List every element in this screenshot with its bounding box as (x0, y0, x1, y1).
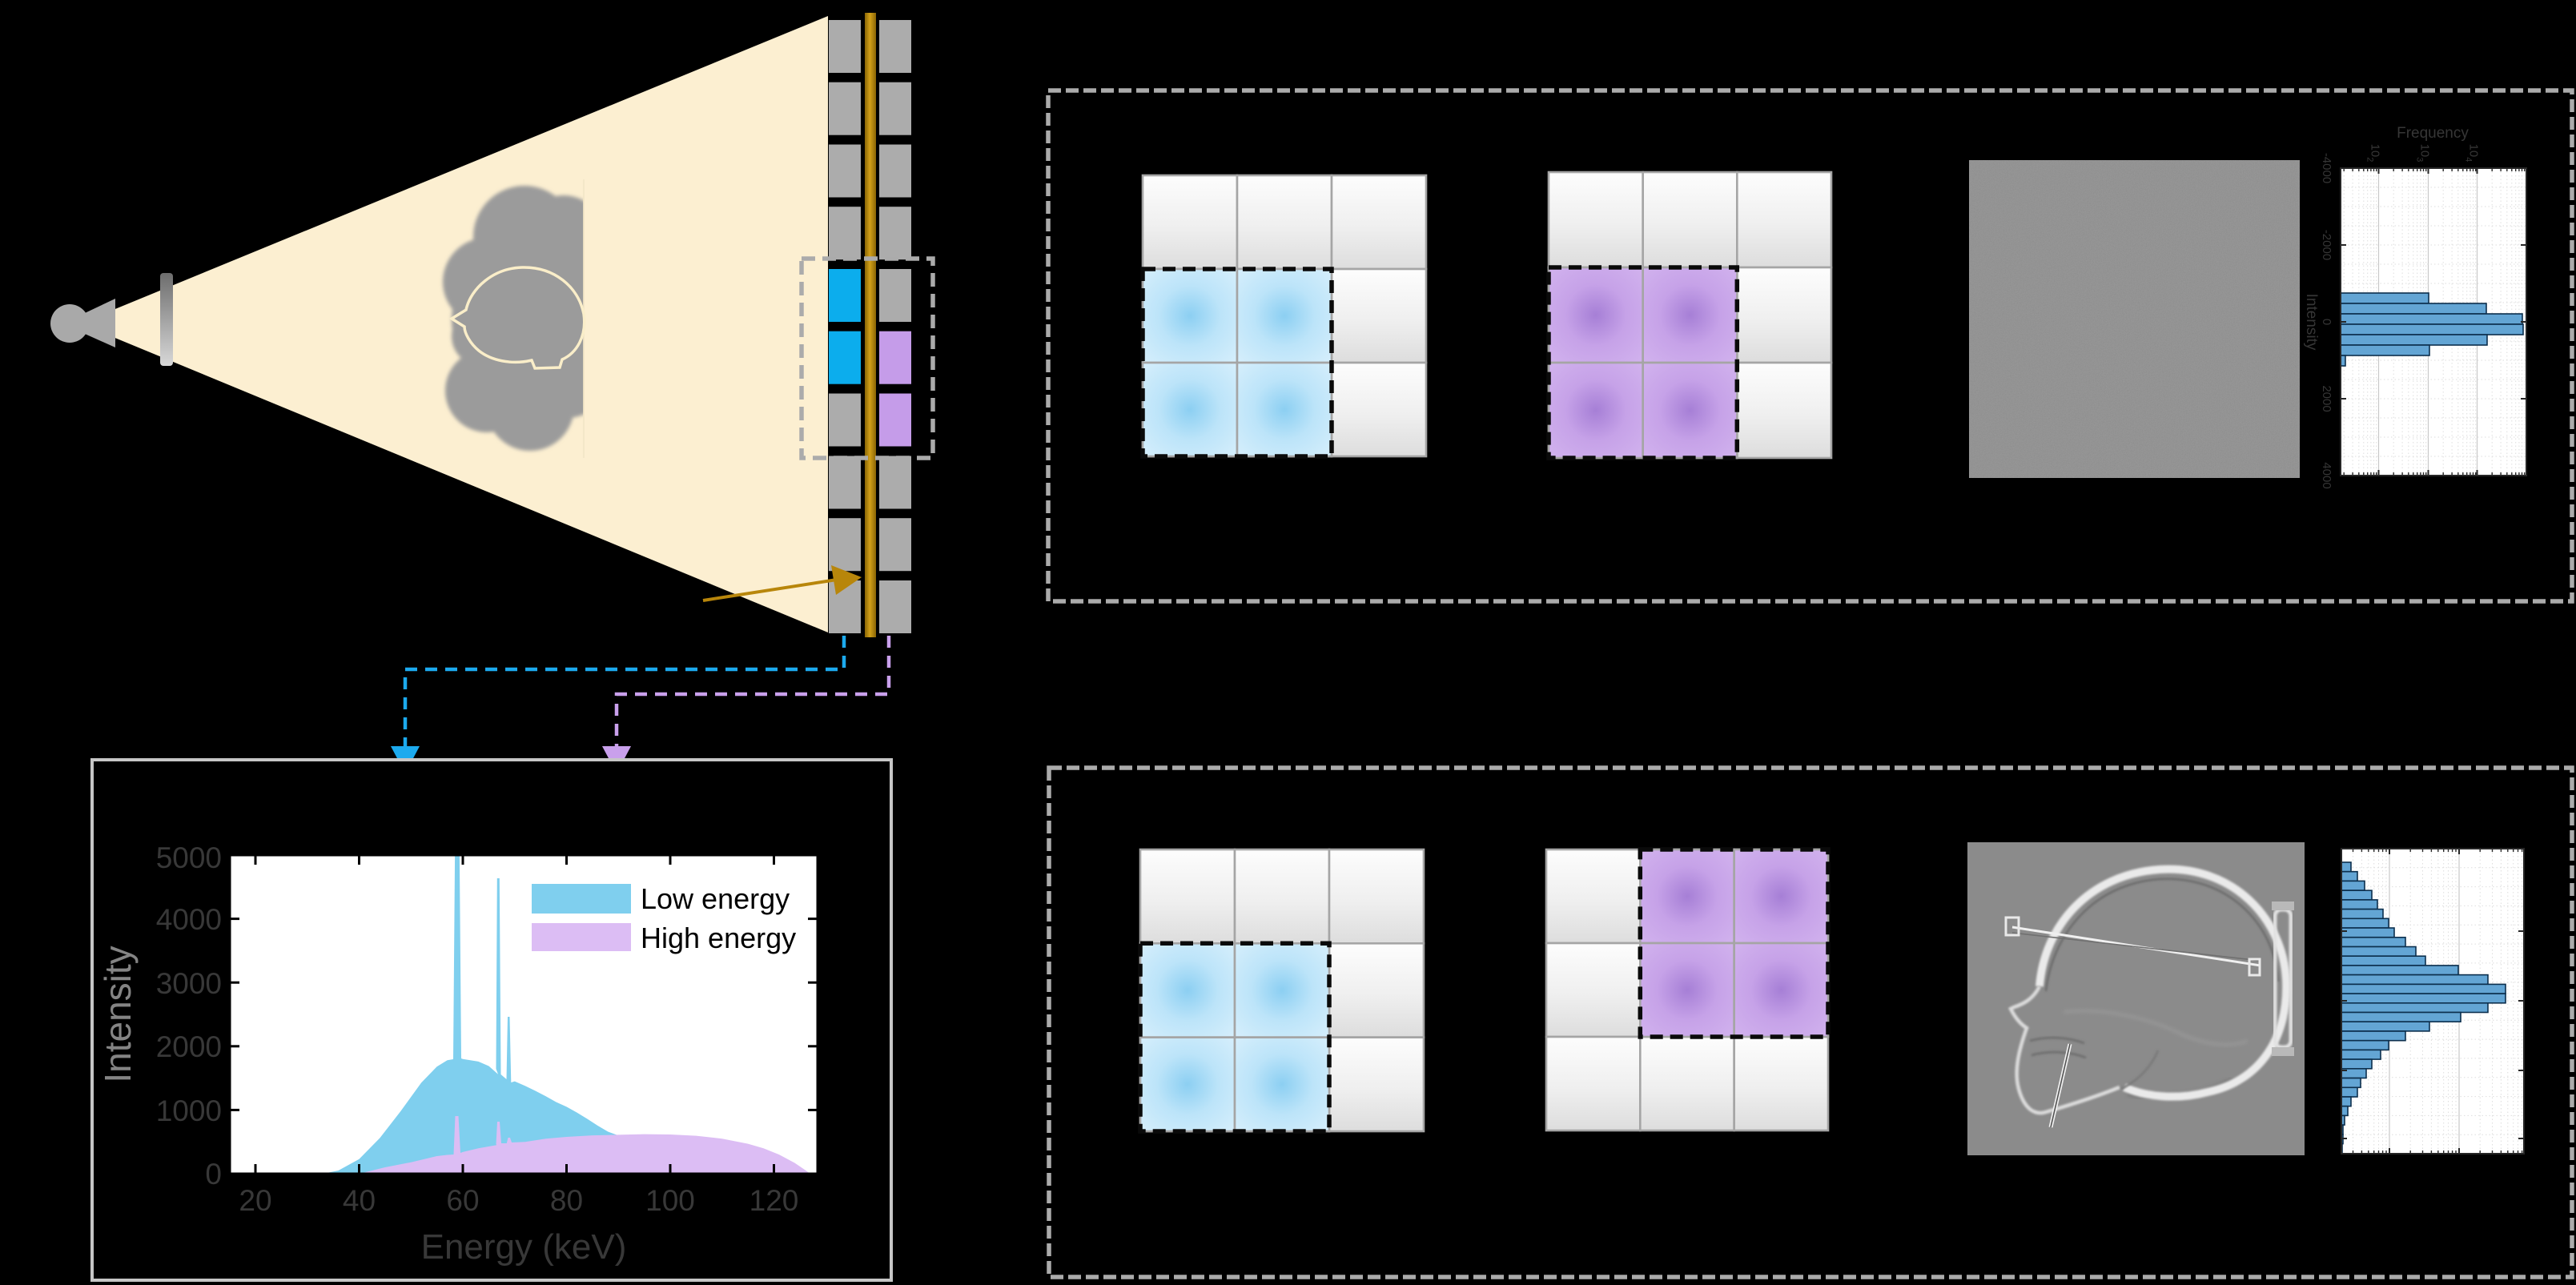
svg-text:80: 80 (550, 1184, 583, 1217)
svg-text:Low energy: Low energy (641, 882, 790, 915)
svg-text:2000: 2000 (2320, 385, 2333, 412)
svg-text:Energy (keV): Energy (keV) (421, 1227, 627, 1267)
svg-text:1000: 1000 (156, 1094, 222, 1127)
svg-text:-2000: -2000 (2320, 230, 2333, 260)
svg-text:Intensity: Intensity (97, 946, 139, 1082)
svg-text:-4000: -4000 (2320, 153, 2333, 183)
svg-text:0: 0 (205, 1158, 222, 1191)
svg-text:104: 104 (2464, 144, 2481, 163)
svg-text:4000: 4000 (156, 903, 222, 936)
svg-text:100: 100 (645, 1184, 695, 1217)
svg-text:102: 102 (2365, 144, 2382, 163)
svg-text:20: 20 (239, 1184, 271, 1217)
svg-text:Frequency: Frequency (2397, 125, 2469, 142)
svg-text:120: 120 (749, 1184, 799, 1217)
svg-text:High energy: High energy (641, 922, 796, 954)
svg-text:60: 60 (446, 1184, 479, 1217)
svg-text:2000: 2000 (156, 1030, 222, 1063)
svg-text:0: 0 (2320, 319, 2333, 325)
svg-text:3000: 3000 (156, 967, 222, 1000)
svg-text:Intensity: Intensity (2303, 294, 2320, 351)
svg-text:4000: 4000 (2320, 462, 2333, 488)
svg-text:5000: 5000 (156, 841, 222, 874)
svg-text:40: 40 (343, 1184, 376, 1217)
svg-text:103: 103 (2415, 144, 2432, 163)
